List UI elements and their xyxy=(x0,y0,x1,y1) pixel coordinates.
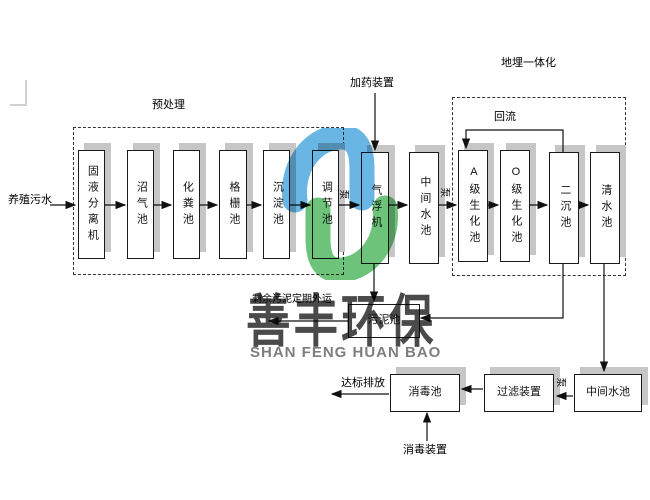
watermark-english-text: SHAN FENG HUAN BAO xyxy=(250,344,441,361)
page-corner-mark xyxy=(10,104,27,106)
box-filter-device: 过滤装置 xyxy=(484,374,554,412)
influent-label: 养殖污水 xyxy=(8,191,52,207)
box-air-flotation: 气浮机 xyxy=(361,152,389,264)
box-a-bio-pool: A级生化池 xyxy=(458,150,488,262)
box-label: O级生化池 xyxy=(508,166,522,247)
box-solid-liquid-separator: 固液分离机 xyxy=(78,150,105,259)
pretreatment-section-label: 预处理 xyxy=(152,96,185,112)
box-label: 清水池 xyxy=(598,184,612,232)
box-sedimentation-pool: 沉淀池 xyxy=(263,150,290,259)
buried-integration-section-label: 地埋一体化 xyxy=(501,54,556,70)
box-label: 中间水池 xyxy=(586,386,630,400)
reflux-label: 回流 xyxy=(494,108,516,124)
box-label: 化粪池 xyxy=(180,181,194,229)
box-intermediate-pool-1: 中间水池 xyxy=(409,152,439,264)
process-flow-diagram: 预处理 地埋一体化 加药装置 回流 养殖污水 剩余污泥定期外运 达标排放 消毒装… xyxy=(0,0,650,500)
box-regulating-pool: 调节池 xyxy=(312,150,339,259)
box-label: 中间水池 xyxy=(417,176,431,240)
box-label: 过滤装置 xyxy=(497,386,541,400)
box-label: 调节池 xyxy=(319,181,333,229)
box-clear-water-pool: 清水池 xyxy=(590,152,620,264)
box-disinfection-pool: 消毒池 xyxy=(390,374,460,412)
disinfection-device-label: 消毒装置 xyxy=(403,441,447,457)
discharge-label: 达标排放 xyxy=(341,374,385,390)
pump-label-2: 泵 xyxy=(439,188,454,198)
box-label: 二沉池 xyxy=(557,184,571,232)
box-label: 沉淀池 xyxy=(270,181,284,229)
box-label: 污泥池 xyxy=(368,314,401,328)
dosing-device-label: 加药装置 xyxy=(350,74,394,90)
box-label: 固液分离机 xyxy=(85,165,99,245)
box-grid-pool: 格栅池 xyxy=(219,150,247,259)
box-septic-pool: 化粪池 xyxy=(173,150,200,259)
box-secondary-sedimentation-pool: 二沉池 xyxy=(549,152,579,264)
box-o-bio-pool: O级生化池 xyxy=(500,150,530,262)
box-biogas-pool: 沼气池 xyxy=(127,150,154,259)
box-label: 气浮机 xyxy=(368,184,382,232)
page-corner-mark xyxy=(25,80,27,106)
box-label: A级生化池 xyxy=(466,166,480,247)
box-label: 格栅池 xyxy=(226,181,240,229)
sludge-out-label: 剩余污泥定期外运 xyxy=(252,290,332,305)
pretreatment-section-frame xyxy=(73,127,344,275)
pump-label-3: 泵 xyxy=(555,378,570,388)
box-sludge-pool: 污泥池 xyxy=(348,304,420,338)
box-intermediate-pool-2: 中间水池 xyxy=(574,374,642,412)
box-label: 消毒池 xyxy=(409,386,442,400)
box-label: 沼气池 xyxy=(134,181,148,229)
pump-label-1: 泵 xyxy=(338,190,353,200)
